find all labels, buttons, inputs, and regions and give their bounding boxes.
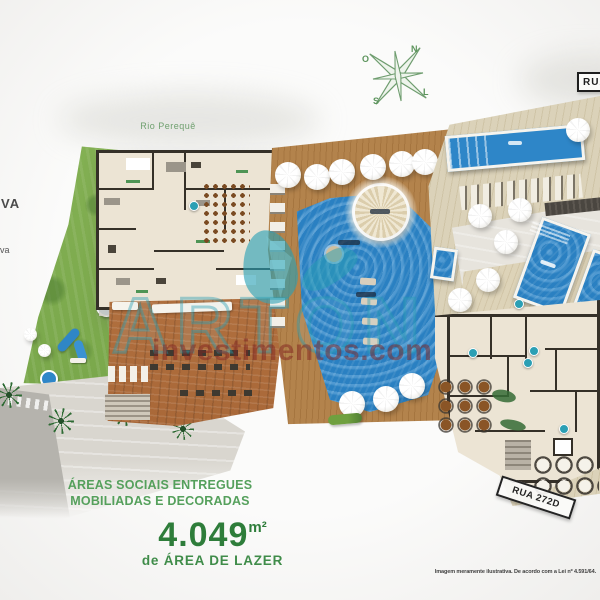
umbrella-icon — [360, 154, 386, 180]
headline-line1: ÁREAS SOCIAIS ENTREGUES — [52, 477, 268, 493]
umbrella-icon — [38, 344, 51, 357]
dining-table-row — [150, 350, 250, 356]
staircase — [505, 440, 531, 470]
umbrella-icon — [389, 151, 415, 177]
area-value: 4.049 — [158, 516, 248, 554]
in-pool-island — [326, 246, 342, 262]
in-pool-lounger — [362, 317, 378, 325]
river-label: Rio Perequê — [118, 121, 218, 131]
resort-plan — [0, 0, 600, 600]
umbrella-icon — [373, 386, 399, 412]
in-pool-lounger — [361, 297, 377, 305]
in-pool-lounger — [363, 337, 379, 345]
street-label-top: RUA — [577, 72, 600, 92]
umbrella-icon — [448, 288, 472, 312]
social-building-floorplan — [96, 150, 284, 310]
area-unit: m² — [248, 519, 266, 536]
umbrella-icon — [476, 268, 500, 292]
compass-icon — [347, 25, 448, 126]
pool-label-mark — [338, 240, 360, 245]
area-value-line: 4.049m² — [105, 518, 320, 552]
umbrella-icon — [304, 164, 330, 190]
numbered-marker — [529, 346, 539, 356]
numbered-marker — [523, 358, 533, 368]
dining-table-row — [180, 390, 260, 396]
sun-loungers — [108, 366, 150, 382]
numbered-marker — [559, 424, 569, 434]
numbered-marker — [468, 348, 478, 358]
headline-block: ÁREAS SOCIAIS ENTREGUES MOBILIADAS E DEC… — [52, 477, 268, 510]
area-block: 4.049m² de ÁREA DE LAZER — [105, 518, 320, 568]
spa-pool — [430, 246, 458, 281]
umbrella-icon — [508, 198, 532, 222]
umbrella-icon — [24, 328, 37, 341]
umbrella-icon — [329, 159, 355, 185]
street-label-top-text: RUA — [583, 77, 600, 88]
pool-label-mark — [370, 209, 390, 214]
umbrella-icon — [566, 118, 590, 142]
palm-tree-icon — [48, 408, 74, 434]
edge-label-upper: VA — [1, 196, 20, 211]
deck-lounger-strip — [270, 184, 285, 334]
numbered-marker — [514, 299, 524, 309]
compass-l-label: L — [423, 87, 429, 97]
umbrella-icon — [275, 162, 301, 188]
in-pool-lounger — [360, 277, 376, 285]
garden-bench — [70, 358, 86, 363]
pool-label-mark — [356, 292, 376, 297]
dining-table-row — [150, 364, 250, 370]
numbered-marker — [189, 201, 199, 211]
compass-o-label: O — [362, 54, 369, 64]
compass-n-label: N — [411, 44, 418, 54]
compass-s-label: S — [373, 96, 379, 106]
service-ramp — [105, 394, 150, 420]
round-dining-tables — [437, 378, 493, 434]
umbrella-icon — [468, 204, 492, 228]
hedge — [328, 413, 363, 426]
edge-label-lower: va — [0, 245, 10, 255]
headline-line2: MOBILIADAS E DECORADAS — [52, 493, 268, 509]
umbrella-icon — [399, 373, 425, 399]
umbrella-icon — [494, 230, 518, 254]
site-plan-canvas: { "compass": { "n": "N", "l": "L", "s": … — [0, 0, 600, 600]
restaurant-tables — [202, 182, 250, 246]
bar-counter — [112, 302, 138, 310]
pool-label-mark — [508, 141, 522, 145]
disclaimer-text: Imagem meramente ilustrativa. De acordo … — [435, 569, 596, 575]
area-caption: de ÁREA DE LAZER — [105, 553, 320, 568]
compass: N O S L — [352, 34, 444, 122]
